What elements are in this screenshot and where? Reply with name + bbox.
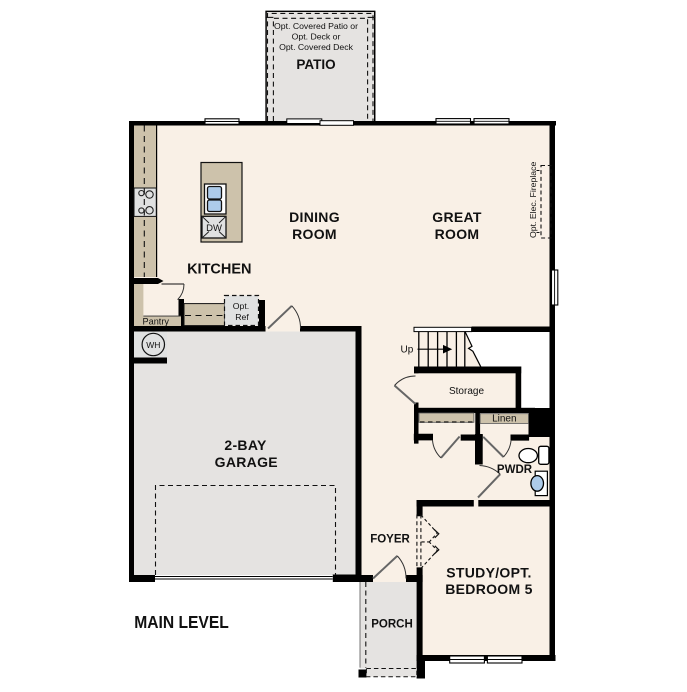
svg-text:2-BAY: 2-BAY [224,437,267,453]
svg-text:Ref: Ref [235,312,249,322]
svg-text:WH: WH [146,340,160,350]
svg-text:BEDROOM 5: BEDROOM 5 [445,581,533,597]
svg-text:GREAT: GREAT [432,209,482,225]
svg-text:Opt.: Opt. [233,301,249,311]
svg-text:GARAGE: GARAGE [215,454,278,470]
svg-text:Opt. Covered Patio or: Opt. Covered Patio or [274,21,358,31]
svg-text:DINING: DINING [289,209,340,225]
svg-text:PORCH: PORCH [371,619,413,631]
svg-text:Linen: Linen [492,414,516,425]
svg-text:Pantry: Pantry [143,317,170,328]
svg-text:ROOM: ROOM [435,226,480,242]
svg-text:MAIN LEVEL: MAIN LEVEL [134,612,229,632]
svg-text:PATIO: PATIO [296,57,335,72]
svg-text:STUDY/OPT.: STUDY/OPT. [446,565,531,581]
svg-text:Opt. Deck or: Opt. Deck or [292,32,341,42]
svg-text:FOYER: FOYER [370,534,410,546]
svg-text:Opt. Covered Deck: Opt. Covered Deck [279,42,354,52]
svg-text:Opt. Elec. Fireplace: Opt. Elec. Fireplace [528,162,538,238]
svg-text:Up: Up [401,345,414,356]
svg-text:ROOM: ROOM [292,226,337,242]
svg-text:DW: DW [206,223,222,234]
svg-text:PWDR: PWDR [497,464,533,476]
svg-text:Storage: Storage [449,386,484,397]
svg-text:KITCHEN: KITCHEN [187,262,251,278]
